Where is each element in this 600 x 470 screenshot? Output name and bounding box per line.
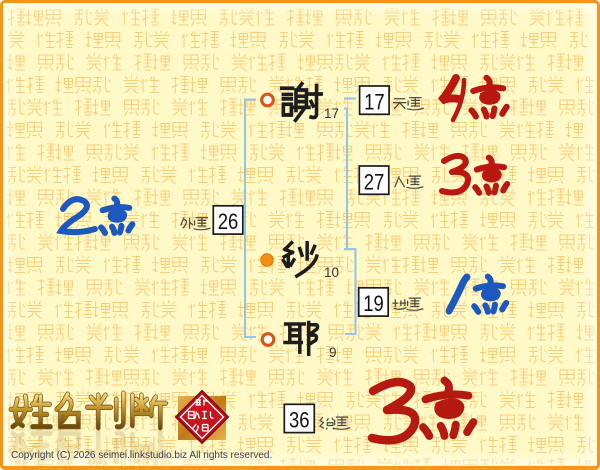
svg-text:9: 9 (329, 345, 337, 360)
svg-text:26: 26 (218, 209, 239, 234)
svg-text:17: 17 (364, 89, 385, 114)
svg-text:27: 27 (364, 169, 385, 194)
svg-text:19: 19 (363, 291, 384, 316)
svg-text:17: 17 (324, 106, 339, 121)
svg-text:36: 36 (289, 408, 310, 433)
svg-text:10: 10 (324, 265, 339, 280)
